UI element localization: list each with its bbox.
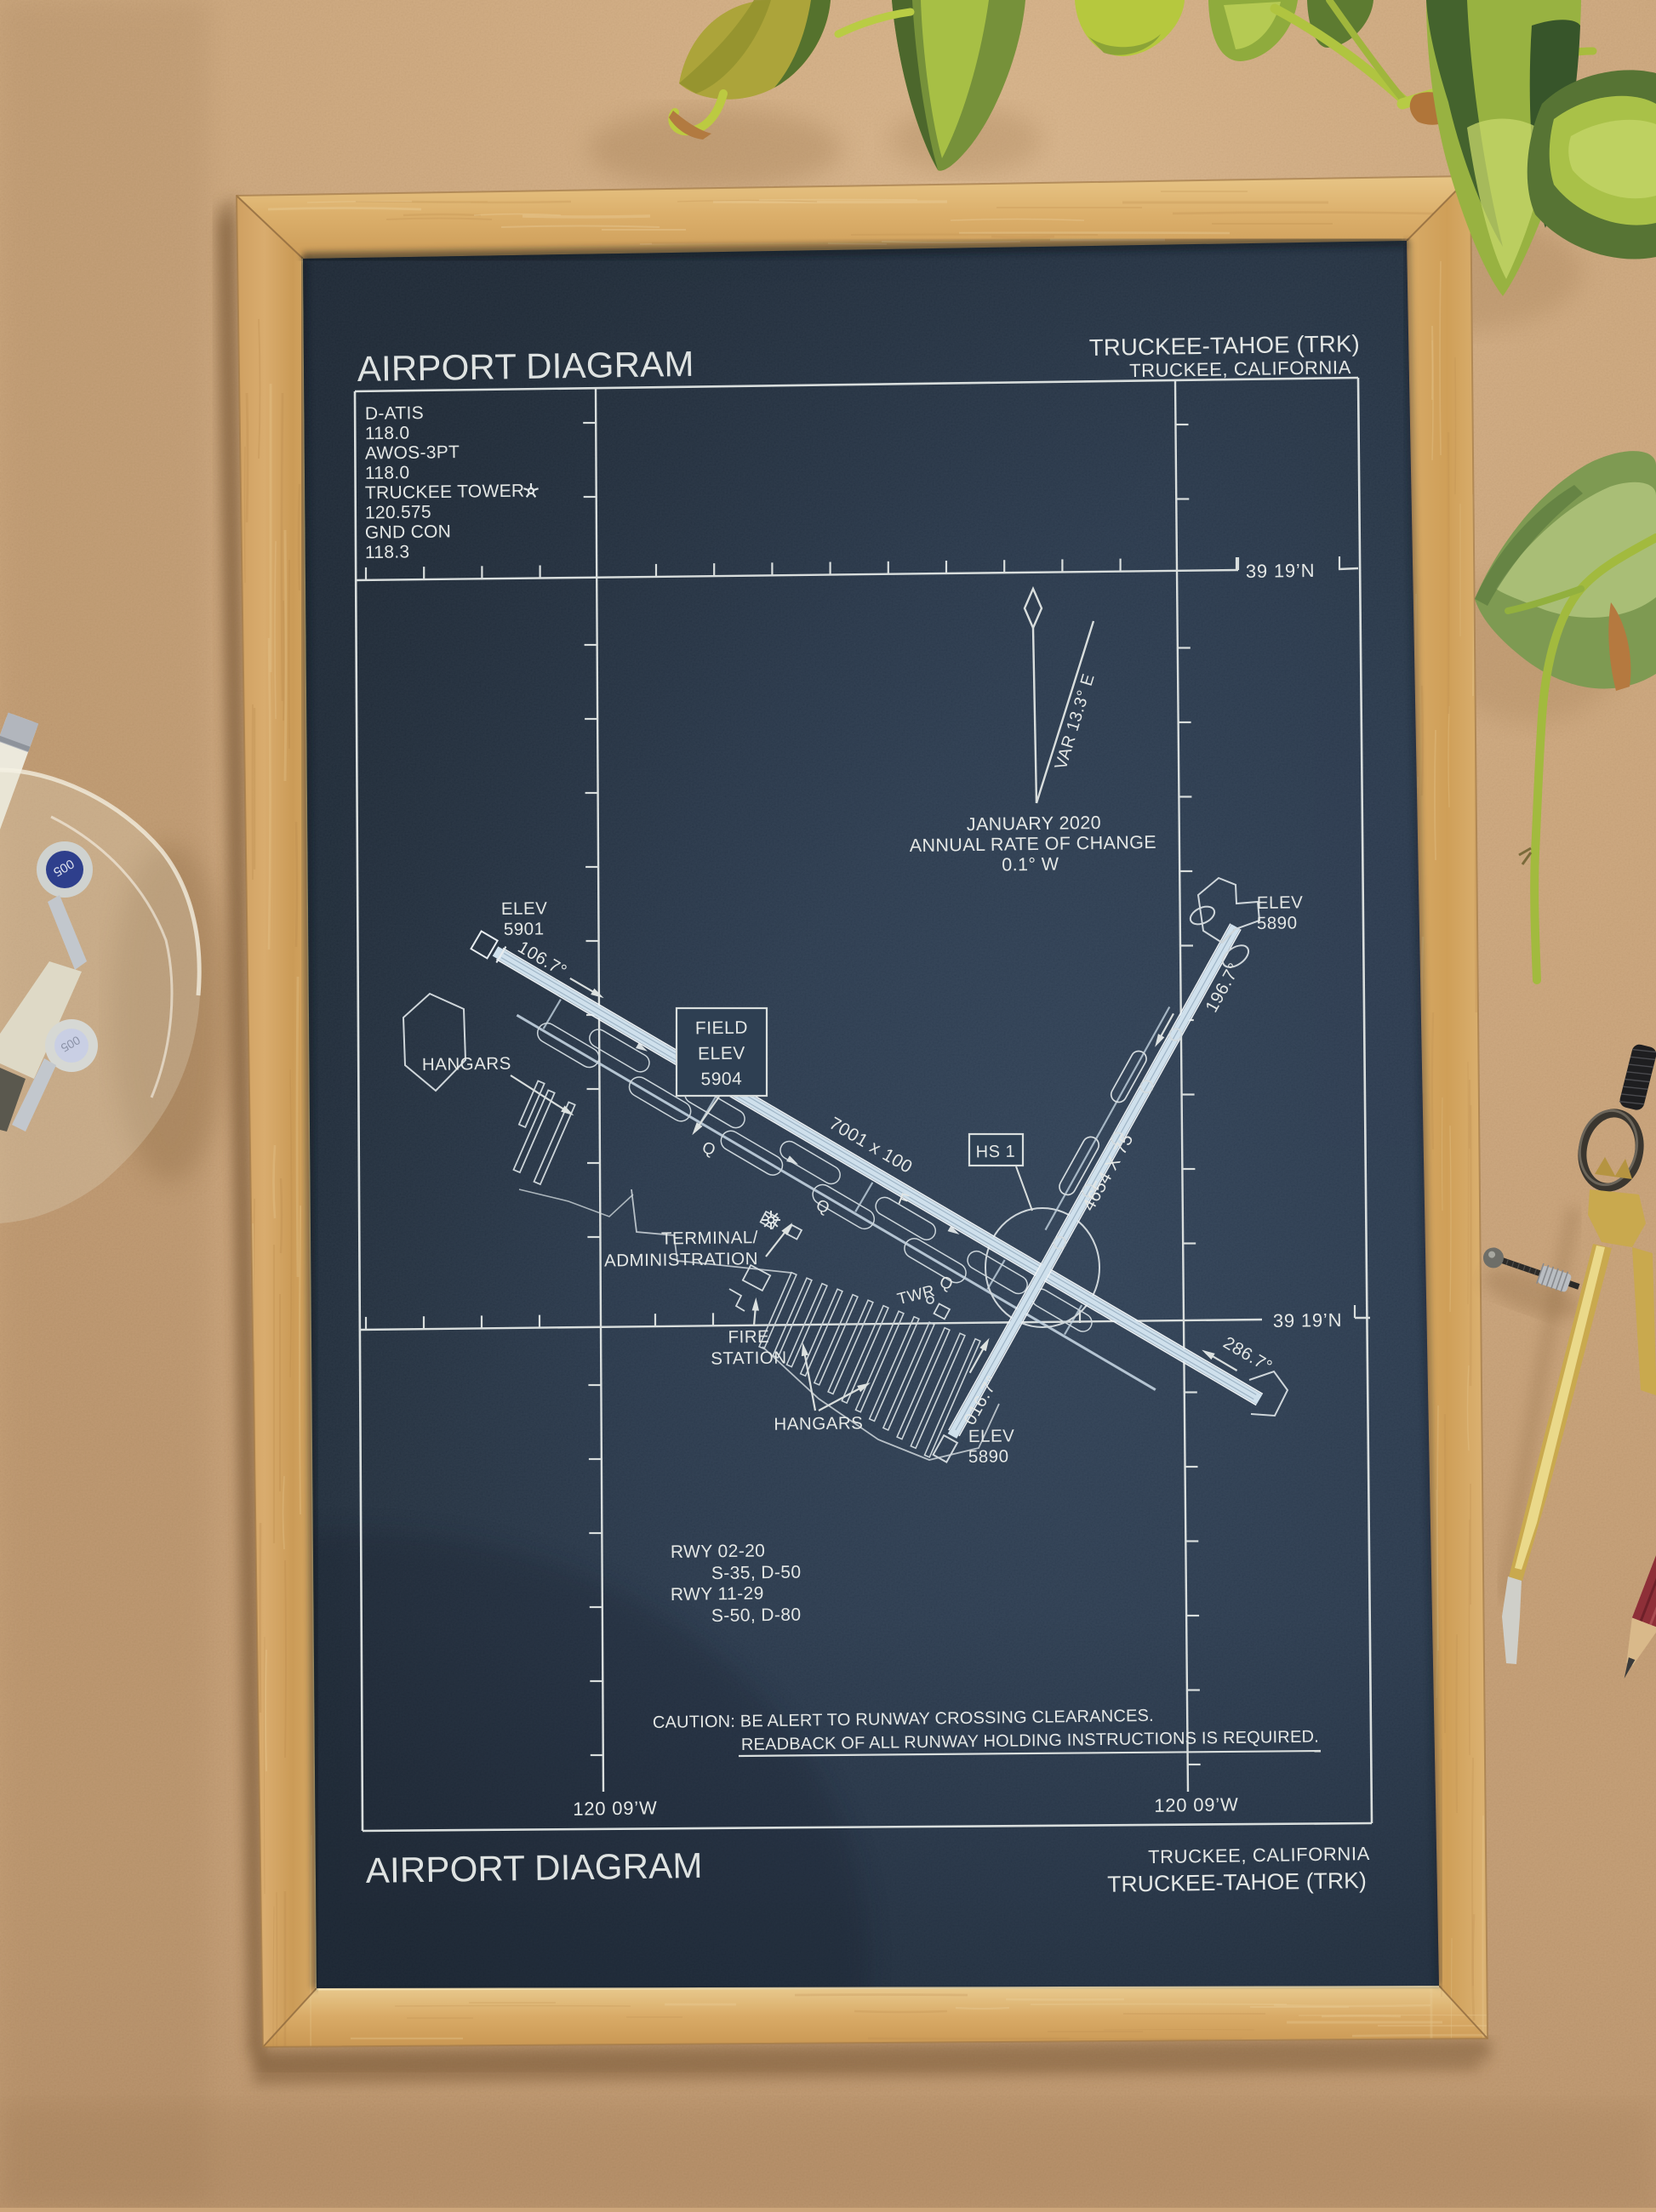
svg-text:TRUCKEE TOWER: TRUCKEE TOWER bbox=[365, 482, 525, 504]
svg-text:ELEV: ELEV bbox=[698, 1044, 745, 1064]
svg-text:5890: 5890 bbox=[968, 1446, 1009, 1467]
svg-text:ADMINISTRATION: ADMINISTRATION bbox=[604, 1249, 758, 1271]
svg-text:0.1° W: 0.1° W bbox=[1002, 854, 1059, 875]
svg-text:AIRPORT DIAGRAM: AIRPORT DIAGRAM bbox=[357, 344, 694, 389]
svg-text:S-35, D-50: S-35, D-50 bbox=[711, 1563, 802, 1583]
svg-text:5901: 5901 bbox=[504, 919, 545, 939]
svg-text:TRUCKEE-TAHOE (TRK): TRUCKEE-TAHOE (TRK) bbox=[1089, 330, 1360, 361]
svg-text:FIELD: FIELD bbox=[695, 1018, 748, 1039]
svg-text:FIRE: FIRE bbox=[728, 1327, 769, 1348]
svg-text:120 09’W: 120 09’W bbox=[573, 1797, 658, 1819]
svg-text:ELEV: ELEV bbox=[501, 898, 548, 919]
svg-text:118.3: 118.3 bbox=[365, 542, 410, 562]
svg-text:5904: 5904 bbox=[700, 1069, 742, 1090]
svg-text:AIRPORT DIAGRAM: AIRPORT DIAGRAM bbox=[365, 1845, 703, 1890]
svg-text:RWY 02-20: RWY 02-20 bbox=[671, 1541, 766, 1562]
svg-text:AWOS-3PT: AWOS-3PT bbox=[365, 442, 460, 464]
svg-text:39 19’N: 39 19’N bbox=[1273, 1309, 1343, 1331]
svg-text:TRUCKEE-TAHOE (TRK): TRUCKEE-TAHOE (TRK) bbox=[1107, 1867, 1367, 1897]
svg-text:RWY 11-29: RWY 11-29 bbox=[671, 1583, 764, 1605]
svg-text:120.575: 120.575 bbox=[365, 502, 431, 522]
svg-text:120 09’W: 120 09’W bbox=[1154, 1793, 1239, 1816]
svg-text:STATION: STATION bbox=[711, 1348, 787, 1368]
svg-text:118.0: 118.0 bbox=[365, 463, 410, 483]
svg-text:GND CON: GND CON bbox=[365, 522, 452, 542]
svg-text:ELEV: ELEV bbox=[1257, 892, 1304, 913]
svg-text:TERMINAL/: TERMINAL/ bbox=[661, 1228, 758, 1249]
svg-text:HANGARS: HANGARS bbox=[774, 1413, 863, 1434]
svg-text:ELEV: ELEV bbox=[968, 1426, 1015, 1446]
svg-text:HS 1: HS 1 bbox=[976, 1143, 1016, 1162]
svg-text:S-50, D-80: S-50, D-80 bbox=[711, 1605, 802, 1626]
svg-text:HANGARS: HANGARS bbox=[422, 1054, 511, 1075]
svg-text:118.0: 118.0 bbox=[365, 424, 410, 444]
svg-text:JANUARY 2020: JANUARY 2020 bbox=[967, 812, 1102, 835]
svg-text:5890: 5890 bbox=[1257, 913, 1298, 933]
svg-text:D-ATIS: D-ATIS bbox=[365, 403, 424, 424]
svg-text:TRUCKEE, CALIFORNIA: TRUCKEE, CALIFORNIA bbox=[1148, 1843, 1370, 1867]
svg-text:39 19’N: 39 19’N bbox=[1246, 560, 1316, 582]
svg-text:ANNUAL RATE OF CHANGE: ANNUAL RATE OF CHANGE bbox=[910, 832, 1157, 856]
